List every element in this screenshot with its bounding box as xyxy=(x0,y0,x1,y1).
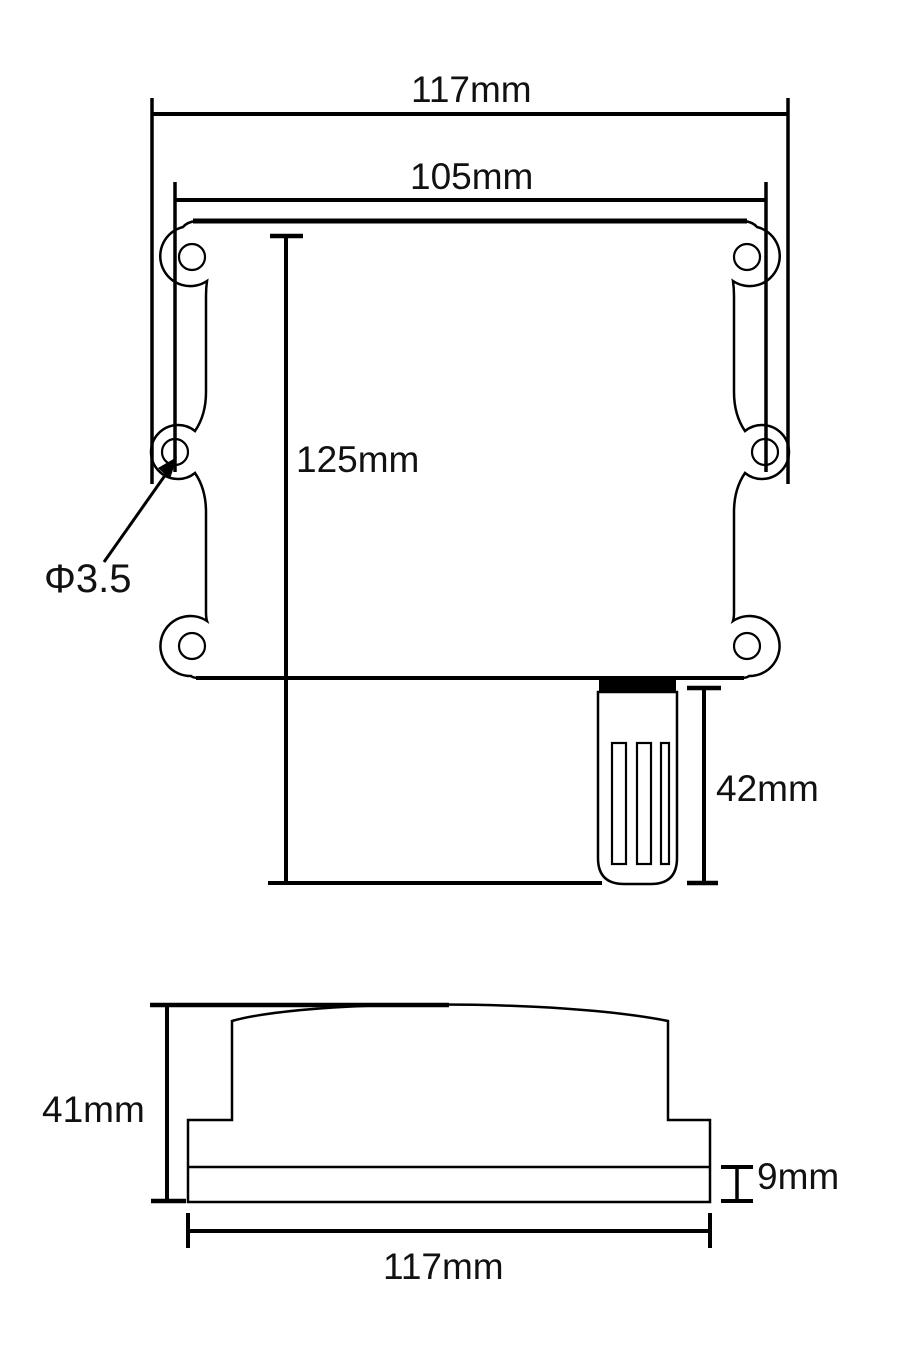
dim-label-probe-length: 42mm xyxy=(716,770,819,807)
enclosure-outline xyxy=(151,221,789,678)
dim-label-hole-diameter: Φ3.5 xyxy=(44,559,132,599)
dim-label-overall-width-bottom: 117mm xyxy=(383,1248,504,1285)
mounting-hole-bottom-right xyxy=(734,633,760,659)
callout-arrow-line xyxy=(104,474,166,562)
probe-vent-slot-2 xyxy=(637,743,651,864)
mounting-hole-bottom-left xyxy=(179,633,205,659)
probe-vent-slot-3 xyxy=(661,743,669,864)
dim-label-body-height: 125mm xyxy=(296,441,419,478)
sensor-probe xyxy=(598,680,677,884)
side-dim-width xyxy=(188,1213,710,1248)
front-dim-body-height xyxy=(268,236,602,883)
dim-label-base-thickness: 9mm xyxy=(757,1158,839,1195)
mounting-hole-top-left xyxy=(179,244,205,270)
side-view xyxy=(150,1005,753,1249)
technical-drawing xyxy=(0,0,900,1348)
probe-collar xyxy=(599,680,676,692)
dim-label-side-height: 41mm xyxy=(42,1091,145,1128)
side-outline xyxy=(188,1005,710,1203)
mounting-hole-top-right xyxy=(734,244,760,270)
side-dim-base-thickness xyxy=(721,1167,753,1201)
dimension-drawing-page: 117mm 105mm 125mm Φ3.5 42mm 41mm 9mm 117… xyxy=(0,0,900,1348)
front-view xyxy=(104,98,789,884)
probe-vent-slot-1 xyxy=(612,743,626,864)
front-dim-hole-spacing xyxy=(175,182,766,472)
dim-label-hole-spacing: 105mm xyxy=(410,158,533,195)
side-dim-height xyxy=(150,1005,449,1201)
dim-label-overall-width-top: 117mm xyxy=(411,71,532,108)
enclosure-body xyxy=(151,221,789,678)
hole-diameter-callout xyxy=(104,457,177,562)
